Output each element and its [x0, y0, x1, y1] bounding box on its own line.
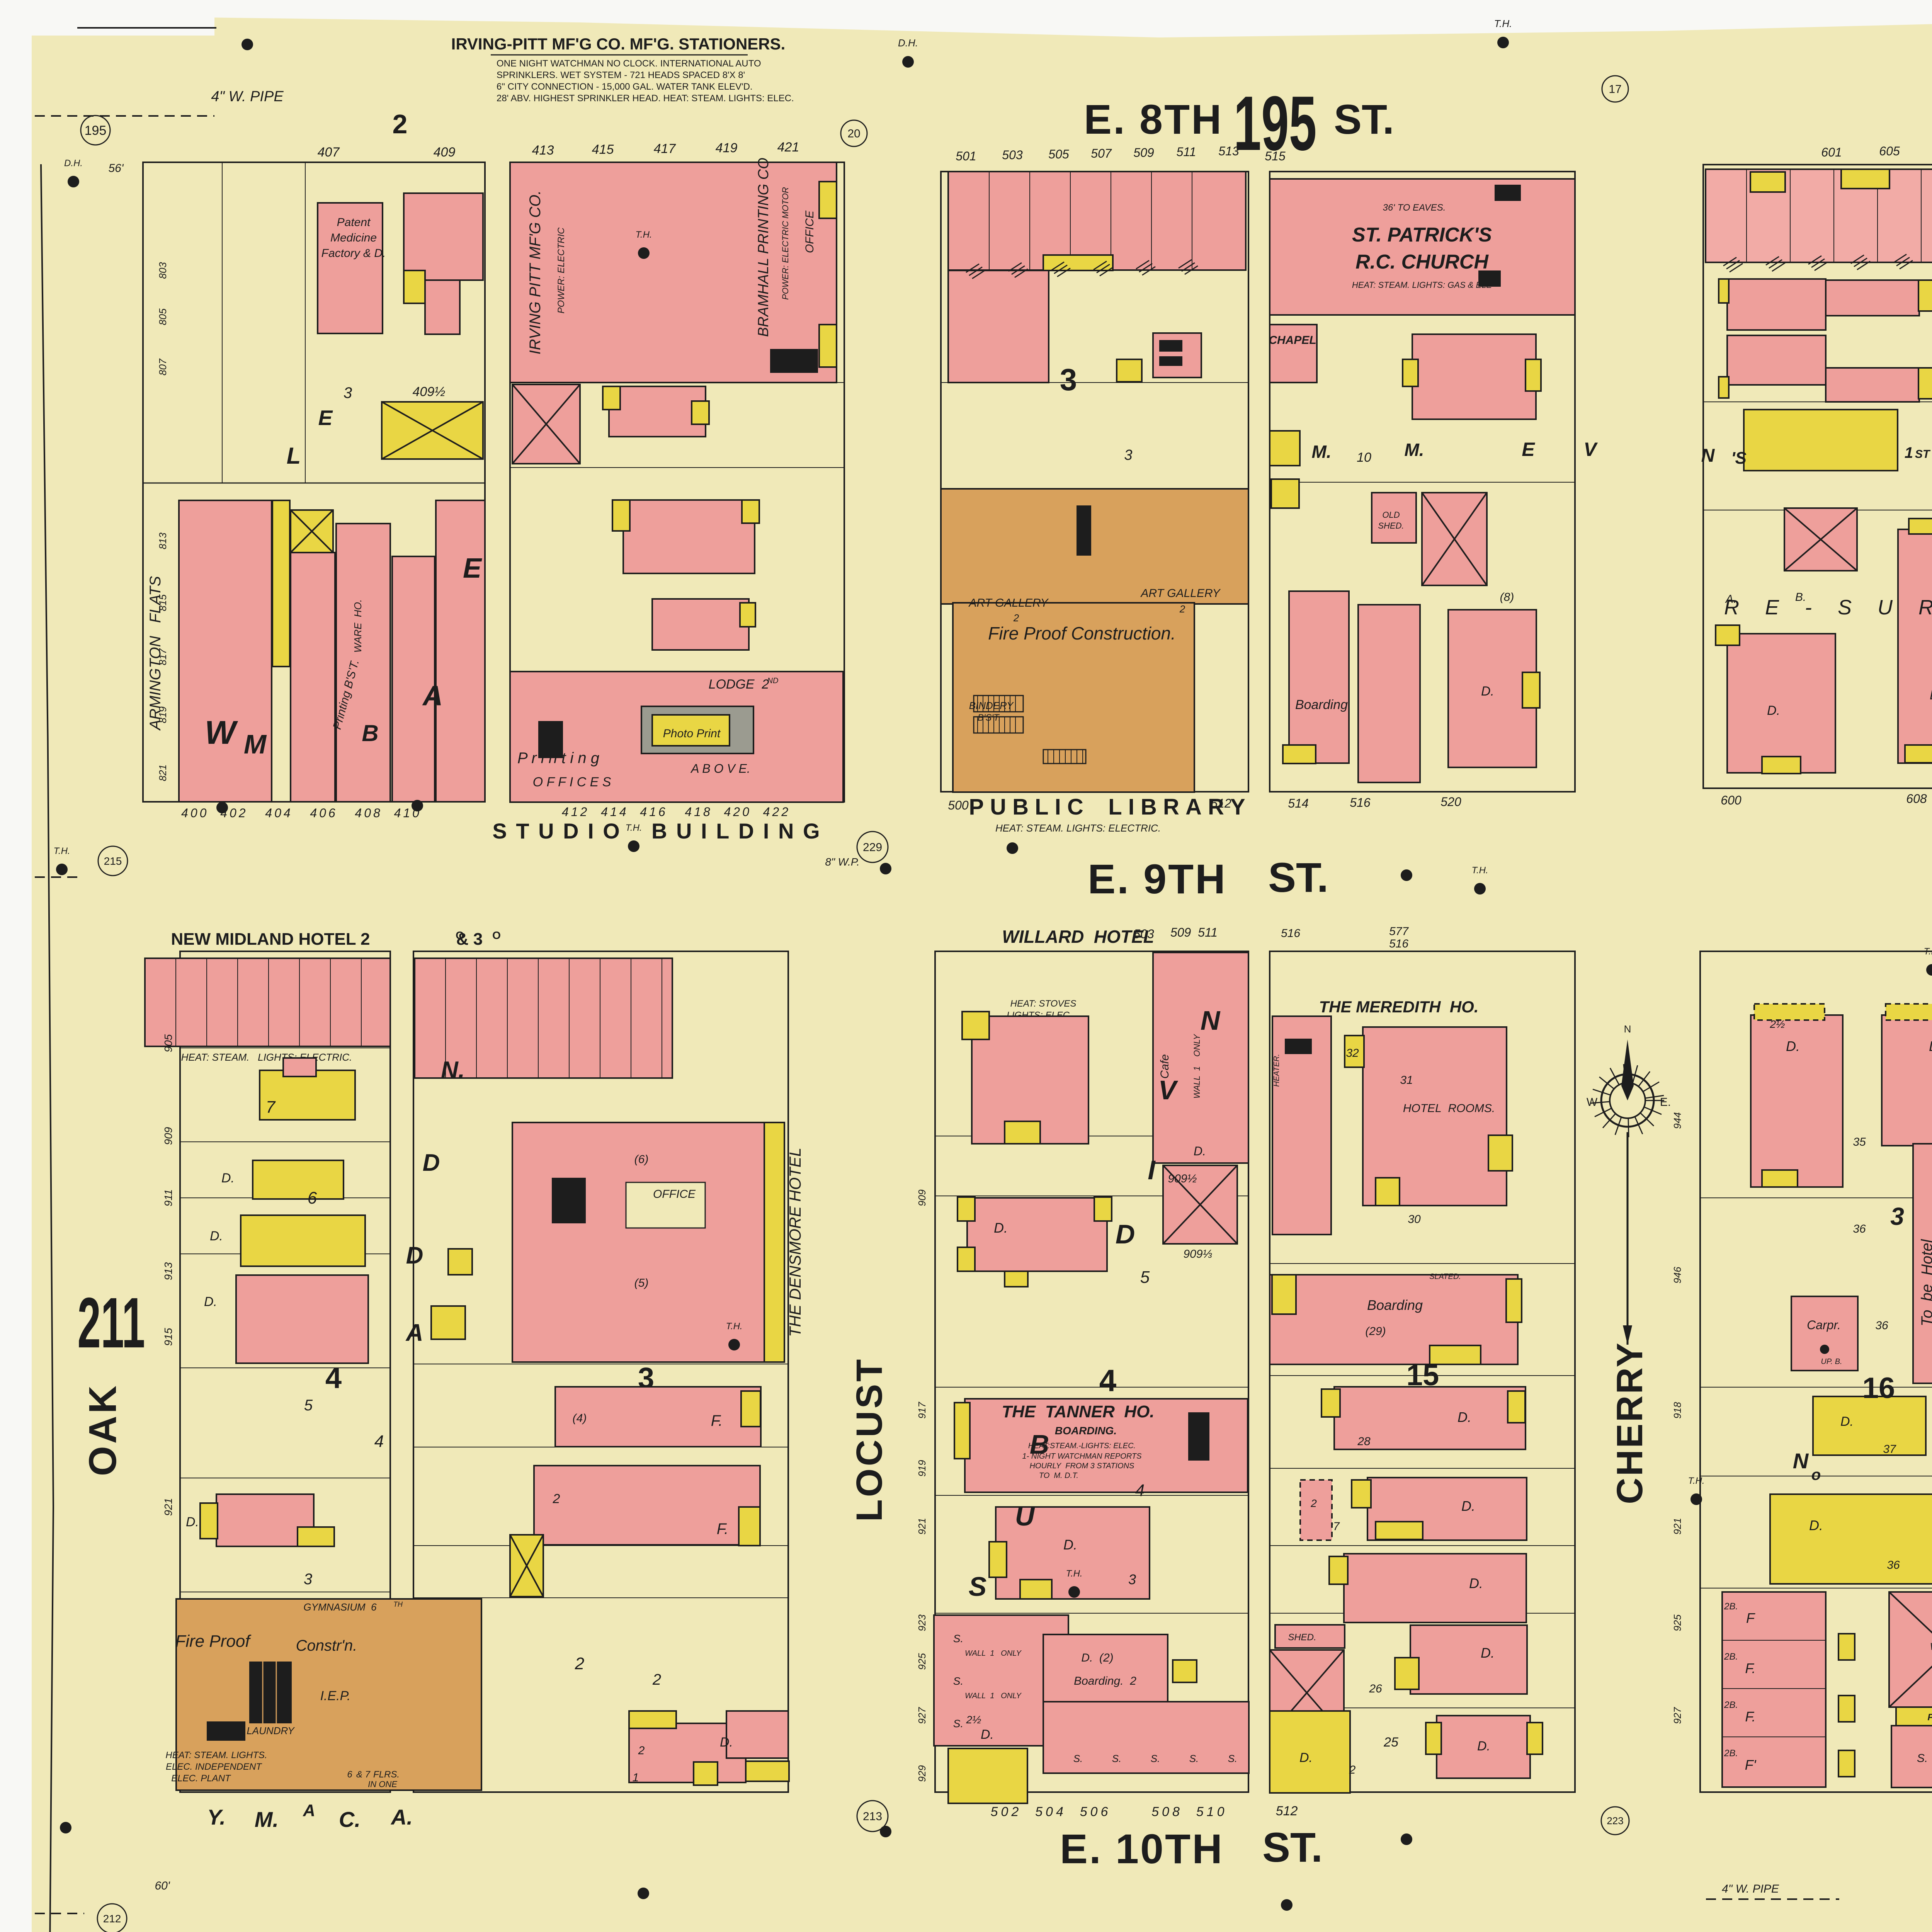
svg-text:SLATED.: SLATED.	[1429, 1272, 1461, 1281]
svg-text:8" W.P.: 8" W.P.	[825, 856, 859, 868]
svg-text:D.: D.	[1461, 1498, 1475, 1514]
svg-text:WARE HO.: WARE HO.	[352, 599, 364, 653]
svg-text:M.: M.	[1311, 442, 1331, 462]
svg-text:& 7: & 7	[356, 1769, 371, 1780]
svg-text:813: 813	[157, 532, 168, 549]
svg-text:S T U D I O B U I L D I N G: S T U D I O B U I L D I N G	[492, 819, 821, 843]
svg-text:W: W	[1587, 1096, 1598, 1109]
svg-text:3: 3	[304, 1571, 312, 1588]
svg-text:I.E.P.: I.E.P.	[320, 1689, 351, 1703]
svg-text:T.H.: T.H.	[1066, 1568, 1082, 1579]
svg-text:A: A	[422, 680, 443, 711]
svg-text:D. (2): D. (2)	[1081, 1651, 1113, 1664]
svg-text:CHAPEL: CHAPEL	[1269, 334, 1316, 347]
svg-text:HOTEL ROOMS.: HOTEL ROOMS.	[1403, 1102, 1495, 1115]
svg-text:To be Hotel: To be Hotel	[1918, 1239, 1932, 1326]
svg-text:600: 600	[1721, 793, 1742, 807]
svg-text:D: D	[406, 1242, 423, 1269]
svg-text:LOCUST: LOCUST	[849, 1357, 890, 1522]
svg-text:2: 2	[1179, 603, 1185, 615]
svg-text:A B O V E.: A B O V E.	[690, 762, 750, 776]
svg-text:S.: S.	[953, 1675, 963, 1687]
svg-text:PORCH 2: PORCH 2	[1927, 1712, 1932, 1723]
svg-text:E. 10TH: E. 10TH	[1060, 1825, 1224, 1872]
svg-text:505: 505	[1048, 147, 1069, 161]
svg-text:921: 921	[916, 1518, 928, 1534]
svg-text:W: W	[205, 714, 238, 751]
svg-text:601: 601	[1821, 145, 1842, 159]
svg-text:T.H.: T.H.	[1494, 18, 1512, 29]
svg-text:ELEC. PLANT: ELEC. PLANT	[171, 1773, 231, 1784]
svg-text:927: 927	[1672, 1707, 1683, 1724]
svg-text:2B.: 2B.	[1724, 1601, 1738, 1612]
svg-text:Constr'n.: Constr'n.	[296, 1637, 357, 1654]
svg-text:213: 213	[863, 1810, 882, 1823]
svg-text:502 504 506 508 510: 502 504 506 508 510	[991, 1804, 1228, 1819]
svg-text:511: 511	[1176, 145, 1196, 159]
svg-text:D.: D.	[1063, 1537, 1077, 1553]
svg-text:BRAMHALL PRINTING CO: BRAMHALL PRINTING CO	[755, 158, 772, 337]
svg-text:O: O	[492, 929, 501, 941]
svg-text:2: 2	[652, 1671, 661, 1688]
svg-text:1: 1	[1905, 444, 1913, 461]
svg-text:415: 415	[592, 142, 614, 157]
svg-text:2B.: 2B.	[1724, 1700, 1738, 1710]
svg-text:POWER: ELECTRIC MOTOR: POWER: ELECTRIC MOTOR	[781, 187, 790, 300]
svg-text:25: 25	[1383, 1735, 1398, 1750]
svg-text:56': 56'	[108, 162, 124, 175]
svg-text:C.: C.	[339, 1807, 361, 1832]
svg-text:IN ONE: IN ONE	[368, 1779, 397, 1789]
svg-text:3: 3	[1890, 1202, 1904, 1230]
svg-text:N: N	[1201, 1005, 1221, 1036]
svg-text:R E - S U R V E Y: R E - S U R V E Y	[1724, 596, 1932, 619]
svg-text:ART GALLERY: ART GALLERY	[968, 597, 1049, 609]
svg-text:IRVING-PITT MF'G CO. MF'G. STA: IRVING-PITT MF'G CO. MF'G. STATIONERS.	[451, 35, 786, 53]
svg-text:6: 6	[308, 1189, 317, 1207]
svg-text:10: 10	[1357, 450, 1371, 465]
svg-text:(6): (6)	[634, 1153, 649, 1166]
svg-text:31: 31	[1400, 1074, 1413, 1087]
svg-text:60': 60'	[155, 1879, 170, 1892]
svg-text:36: 36	[1853, 1223, 1866, 1235]
svg-text:605: 605	[1879, 144, 1900, 158]
svg-text:(5): (5)	[634, 1277, 649, 1289]
svg-text:909½: 909½	[1168, 1172, 1197, 1185]
svg-text:D: D	[1116, 1219, 1135, 1249]
svg-text:927: 927	[916, 1707, 928, 1724]
svg-text:A.: A.	[390, 1805, 413, 1829]
svg-text:HEAT: STEAM. LIGHTS: ELECTRIC.: HEAT: STEAM. LIGHTS: ELECTRIC.	[995, 822, 1161, 834]
svg-text:4: 4	[325, 1362, 342, 1395]
svg-text:577: 577	[1389, 925, 1409, 938]
svg-text:O F F I C E S: O F F I C E S	[533, 775, 611, 789]
svg-text:16: 16	[1862, 1372, 1895, 1405]
svg-text:6" CITY CONNECTION - 15,000 GA: 6" CITY CONNECTION - 15,000 GAL. WATER T…	[497, 82, 753, 92]
svg-text:5: 5	[304, 1397, 313, 1414]
svg-text:T.H.: T.H.	[1471, 865, 1488, 876]
svg-text:2: 2	[1310, 1497, 1317, 1509]
svg-text:N: N	[1793, 1449, 1809, 1473]
svg-text:A: A	[303, 1801, 315, 1820]
svg-text:2: 2	[575, 1654, 584, 1673]
svg-text:E: E	[318, 406, 333, 430]
svg-text:905: 905	[162, 1034, 174, 1052]
svg-text:D.: D.	[186, 1515, 199, 1529]
svg-text:923: 923	[916, 1614, 928, 1631]
svg-text:918: 918	[1672, 1402, 1683, 1419]
svg-text:Boarding: Boarding	[1295, 697, 1348, 712]
svg-text:N.: N.	[441, 1057, 465, 1083]
svg-text:36: 36	[1887, 1559, 1900, 1571]
svg-text:917: 917	[916, 1401, 928, 1419]
svg-text:3: 3	[1128, 1571, 1136, 1587]
svg-text:OAK: OAK	[81, 1383, 124, 1476]
svg-text:36' TO EAVES.: 36' TO EAVES.	[1383, 202, 1446, 213]
svg-text:ART GALLERY: ART GALLERY	[1140, 587, 1221, 600]
svg-text:TH: TH	[393, 1600, 403, 1608]
svg-text:30: 30	[1408, 1213, 1421, 1226]
svg-text:3: 3	[344, 384, 352, 401]
svg-text:M.: M.	[255, 1807, 279, 1832]
svg-text:E.: E.	[1660, 1096, 1671, 1109]
svg-text:212: 212	[103, 1913, 121, 1925]
svg-text:909: 909	[162, 1127, 174, 1145]
svg-text:D.H.: D.H.	[898, 37, 918, 49]
svg-text:815: 815	[157, 594, 168, 611]
svg-text:4: 4	[1135, 1481, 1145, 1500]
svg-text:1: 1	[633, 1771, 639, 1784]
svg-text:LODGE 2: LODGE 2	[709, 677, 769, 692]
svg-text:T.H.: T.H.	[1923, 946, 1932, 957]
svg-text:WALL 1 ONLY: WALL 1 ONLY	[965, 1692, 1022, 1700]
svg-text:D.: D.	[1469, 1575, 1483, 1591]
svg-text:TO M. D.T.: TO M. D.T.	[1039, 1471, 1078, 1480]
svg-text:V: V	[1158, 1075, 1179, 1105]
svg-text:SHED.: SHED.	[1378, 521, 1404, 531]
svg-text:28' ABV. HIGHEST SPRINKLER HEA: 28' ABV. HIGHEST SPRINKLER HEAD. HEAT: S…	[497, 93, 794, 104]
svg-text:ST.: ST.	[1268, 854, 1328, 901]
svg-text:512: 512	[1276, 1804, 1298, 1818]
svg-text:(4): (4)	[573, 1412, 587, 1425]
svg-text:D.: D.	[1809, 1517, 1823, 1533]
svg-text:507: 507	[1091, 146, 1112, 160]
svg-text:THE DENSMORE HOTEL: THE DENSMORE HOTEL	[786, 1148, 804, 1337]
svg-text:195: 195	[85, 123, 107, 138]
svg-text:35: 35	[1853, 1136, 1866, 1148]
svg-text:P r i n t i n g: P r i n t i n g	[517, 750, 599, 767]
svg-text:Fire Proof: Fire Proof	[175, 1632, 252, 1651]
svg-text:U: U	[1015, 1501, 1035, 1531]
svg-text:S.: S.	[1228, 1753, 1238, 1764]
svg-text:36: 36	[1875, 1319, 1888, 1332]
svg-text:509 511: 509 511	[1170, 925, 1218, 939]
svg-text:2: 2	[1013, 612, 1019, 624]
svg-text:D.: D.	[1299, 1750, 1313, 1765]
svg-text:D.: D.	[720, 1735, 733, 1750]
svg-text:BOARDING.: BOARDING.	[1055, 1425, 1117, 1437]
svg-text:M.: M.	[1404, 440, 1424, 460]
svg-text:HEAT: STEAM. LIGHTS: ELECTRI: HEAT: STEAM. LIGHTS: ELECTRIC.	[181, 1051, 352, 1063]
svg-text:M: M	[244, 729, 267, 759]
svg-text:407: 407	[318, 145, 340, 160]
svg-text:929: 929	[916, 1765, 928, 1782]
svg-text:26: 26	[1369, 1682, 1382, 1695]
svg-text:B: B	[362, 720, 378, 746]
svg-text:516: 516	[1389, 937, 1408, 950]
svg-text:F.: F.	[1745, 1660, 1755, 1676]
svg-text:412 414 416 418 420 422: 412 414 416 418 420 422	[562, 805, 791, 819]
svg-text:D: D	[423, 1150, 440, 1176]
svg-text:421: 421	[777, 140, 799, 155]
svg-text:WALL 1 ONLY: WALL 1 ONLY	[1192, 1034, 1202, 1099]
svg-text:D.: D.	[1481, 1645, 1495, 1661]
svg-text:E. 9TH: E. 9TH	[1088, 855, 1227, 902]
svg-text:ST.: ST.	[1262, 1824, 1323, 1871]
svg-text:D.: D.	[1194, 1144, 1206, 1158]
svg-text:211: 211	[78, 1283, 145, 1363]
svg-text:7: 7	[266, 1098, 276, 1117]
svg-text:5: 5	[1140, 1268, 1150, 1287]
svg-text:ELEC. INDEPENDENT: ELEC. INDEPENDENT	[166, 1762, 262, 1772]
svg-text:A: A	[405, 1320, 423, 1346]
svg-text:D.: D.	[981, 1727, 994, 1742]
svg-text:N: N	[1624, 1023, 1631, 1035]
svg-text:32: 32	[1346, 1047, 1359, 1060]
svg-text:817: 817	[157, 648, 168, 665]
svg-text:509: 509	[1133, 146, 1154, 160]
svg-text:516: 516	[1350, 796, 1371, 810]
svg-text:FLRS.: FLRS.	[373, 1769, 400, 1780]
svg-text:20: 20	[847, 128, 860, 140]
svg-text:915: 915	[162, 1328, 174, 1346]
svg-text:413: 413	[532, 143, 554, 158]
svg-text:OFFICE: OFFICE	[803, 210, 816, 253]
svg-text:HEAT: STEAM. LIGHTS: GAS & ELE: HEAT: STEAM. LIGHTS: GAS & ELE	[1352, 280, 1492, 290]
svg-text:Boarding: Boarding	[1930, 688, 1932, 702]
svg-text:Photo Print: Photo Print	[663, 727, 721, 740]
svg-text:921: 921	[1672, 1518, 1683, 1534]
svg-text:LAUNDRY: LAUNDRY	[247, 1725, 295, 1736]
svg-text:P U B L I C L I B R A R Y: P U B L I C L I B R A R Y	[969, 794, 1245, 820]
svg-text:Factory & D.: Factory & D.	[321, 247, 386, 260]
svg-text:2B.: 2B.	[1724, 1748, 1738, 1759]
svg-text:L: L	[287, 443, 301, 469]
svg-text:512: 512	[1211, 796, 1231, 810]
svg-text:946: 946	[1672, 1267, 1683, 1284]
svg-text:D.: D.	[994, 1220, 1008, 1236]
svg-text:3: 3	[1060, 362, 1077, 397]
svg-text:819: 819	[157, 706, 168, 723]
svg-text:2: 2	[638, 1744, 645, 1757]
svg-text:2: 2	[393, 109, 408, 139]
svg-text:D.: D.	[1458, 1409, 1471, 1425]
svg-text:SPRINKLERS. WET SYSTEM - 721 H: SPRINKLERS. WET SYSTEM - 721 HEADS SPACE…	[497, 70, 745, 80]
svg-text:20: 20	[1896, 1930, 1907, 1932]
svg-text:F: F	[1746, 1610, 1755, 1626]
svg-text:4: 4	[1099, 1363, 1117, 1398]
svg-text:S.: S.	[1917, 1752, 1928, 1765]
svg-text:(8): (8)	[1500, 591, 1514, 604]
svg-text:803: 803	[157, 262, 168, 279]
svg-text:T.H.: T.H.	[625, 823, 642, 833]
svg-text:608: 608	[1906, 792, 1927, 806]
svg-text:S.: S.	[953, 1633, 963, 1645]
svg-text:513: 513	[1218, 144, 1239, 158]
svg-text:807: 807	[157, 358, 168, 376]
svg-text:D.: D.	[1840, 1414, 1854, 1429]
svg-text:4: 4	[374, 1432, 384, 1451]
svg-text:OFFICE: OFFICE	[653, 1188, 696, 1201]
svg-text:Boarding: Boarding	[1367, 1297, 1423, 1313]
svg-text:409½: 409½	[412, 384, 445, 399]
svg-text:THE MEREDITH HO.: THE MEREDITH HO.	[1319, 998, 1478, 1016]
svg-text:229: 229	[863, 841, 882, 854]
svg-text:28: 28	[1357, 1435, 1371, 1448]
svg-text:ND: ND	[767, 677, 779, 685]
svg-text:215: 215	[104, 855, 122, 867]
svg-text:T.H.: T.H.	[1688, 1476, 1704, 1486]
svg-text:516: 516	[1281, 927, 1300, 940]
svg-text:WAGON: WAGON	[1930, 1641, 1932, 1652]
svg-text:2B.: 2B.	[1724, 1651, 1738, 1662]
svg-text:D.: D.	[221, 1171, 235, 1185]
svg-text:223: 223	[1607, 1815, 1623, 1827]
svg-text:409: 409	[434, 145, 456, 160]
svg-text:909: 909	[916, 1189, 928, 1206]
svg-text:F.: F.	[711, 1412, 723, 1429]
svg-text:B: B	[1030, 1429, 1049, 1459]
svg-text:o: o	[1811, 1466, 1821, 1483]
svg-text:NEW MIDLAND HOTEL 2: NEW MIDLAND HOTEL 2	[171, 930, 370, 949]
svg-text:515: 515	[1265, 149, 1286, 163]
svg-text:HEAT: STEAM. LIGHTS.: HEAT: STEAM. LIGHTS.	[165, 1750, 267, 1760]
svg-text:UP. B.: UP. B.	[1821, 1357, 1842, 1366]
svg-text:Y.: Y.	[207, 1805, 226, 1829]
svg-text:(29): (29)	[1365, 1325, 1386, 1338]
svg-text:Medicine: Medicine	[330, 231, 377, 244]
svg-text:S.: S.	[1073, 1753, 1083, 1764]
svg-text:HOURLY FROM 3 STATIONS: HOURLY FROM 3 STATIONS	[1030, 1462, 1134, 1470]
svg-text:S.: S.	[953, 1718, 963, 1730]
svg-text:514: 514	[1288, 796, 1308, 810]
svg-text:503: 503	[1002, 148, 1023, 162]
svg-text:944: 944	[1672, 1112, 1683, 1129]
svg-text:17: 17	[1609, 83, 1621, 96]
svg-text:925: 925	[1672, 1614, 1683, 1631]
svg-text:37: 37	[1883, 1443, 1896, 1456]
svg-text:2½: 2½	[966, 1714, 981, 1726]
svg-text:911: 911	[162, 1189, 174, 1207]
svg-text:417: 417	[654, 141, 676, 156]
svg-text:D.: D.	[1767, 703, 1780, 718]
svg-text:419: 419	[716, 141, 738, 155]
svg-text:D.: D.	[210, 1229, 223, 1243]
svg-text:GYMNASIUM 6: GYMNASIUM 6	[303, 1601, 377, 1613]
svg-text:D.: D.	[1786, 1038, 1800, 1054]
svg-text:ST. PATRICK'S: ST. PATRICK'S	[1352, 224, 1492, 246]
svg-text:6: 6	[347, 1769, 352, 1780]
svg-text:HEAT: STOVES: HEAT: STOVES	[1010, 998, 1077, 1009]
svg-text:POWER: ELECTRIC: POWER: ELECTRIC	[556, 227, 566, 313]
svg-text:ONE NIGHT WATCHMAN NO CLOCK. I: ONE NIGHT WATCHMAN NO CLOCK. INTERNATION…	[497, 58, 761, 69]
svg-text:I: I	[1148, 1155, 1156, 1185]
svg-text:2: 2	[553, 1492, 560, 1506]
svg-text:D.: D.	[1929, 1038, 1932, 1054]
svg-text:R.C. CHURCH: R.C. CHURCH	[1355, 251, 1489, 273]
svg-text:S.: S.	[1151, 1753, 1160, 1764]
svg-text:E: E	[1522, 439, 1535, 460]
svg-text:& 3: & 3	[456, 930, 483, 949]
svg-text:SHED.: SHED.	[1288, 1632, 1316, 1643]
svg-text:T.H.: T.H.	[635, 230, 652, 240]
svg-text:Carpr.: Carpr.	[1807, 1318, 1841, 1332]
svg-text:ST.: ST.	[1334, 96, 1394, 143]
svg-text:HEATER.: HEATER.	[1272, 1054, 1281, 1087]
svg-text:500: 500	[948, 798, 969, 812]
svg-text:'S: 'S	[1731, 449, 1747, 468]
svg-text:805: 805	[157, 308, 168, 325]
svg-text:S.: S.	[1112, 1753, 1122, 1764]
svg-text:3: 3	[1124, 447, 1132, 463]
svg-text:ST: ST	[1915, 448, 1931, 461]
svg-text:2½: 2½	[1770, 1018, 1785, 1030]
svg-text:BINDERY: BINDERY	[969, 700, 1014, 711]
svg-text:V: V	[1583, 439, 1598, 460]
svg-text:T.H.: T.H.	[53, 846, 70, 856]
svg-text:CHERRY: CHERRY	[1609, 1341, 1650, 1504]
svg-text:913: 913	[162, 1262, 174, 1280]
svg-text:F': F'	[1745, 1757, 1757, 1773]
svg-text:D.: D.	[1477, 1739, 1490, 1753]
svg-text:Patent: Patent	[337, 216, 371, 229]
svg-text:501: 501	[956, 149, 976, 163]
svg-text:921: 921	[162, 1498, 174, 1516]
svg-text:IRVING PITT MF'G CO.: IRVING PITT MF'G CO.	[527, 190, 544, 355]
svg-text:2: 2	[1349, 1764, 1356, 1776]
svg-text:4" W. PIPE: 4" W. PIPE	[211, 88, 284, 105]
svg-text:F.: F.	[1745, 1709, 1755, 1725]
svg-text:503: 503	[1133, 927, 1154, 941]
svg-text:S.: S.	[1189, 1753, 1199, 1764]
svg-text:D.: D.	[1481, 684, 1494, 699]
svg-text:THE TANNER HO.: THE TANNER HO.	[1002, 1402, 1154, 1421]
svg-text:4" W. PIPE: 4" W. PIPE	[1722, 1883, 1779, 1895]
svg-text:520: 520	[1440, 795, 1461, 809]
svg-text:F.: F.	[717, 1520, 728, 1537]
svg-text:B'S'T.: B'S'T.	[978, 713, 1001, 723]
svg-text:D.: D.	[204, 1294, 217, 1309]
svg-text:Boarding. 2: Boarding. 2	[1074, 1675, 1136, 1687]
svg-text:821: 821	[157, 764, 168, 781]
svg-text:S: S	[969, 1571, 987, 1602]
svg-text:D.H.: D.H.	[64, 158, 83, 168]
svg-text:E. 8TH: E. 8TH	[1084, 96, 1223, 143]
svg-text:Fire Proof Construction.: Fire Proof Construction.	[988, 623, 1176, 643]
svg-text:925: 925	[916, 1653, 928, 1670]
svg-text:OLD: OLD	[1382, 510, 1400, 520]
svg-text:909⅓: 909⅓	[1183, 1248, 1212, 1260]
svg-text:E: E	[463, 553, 482, 584]
svg-text:N: N	[1701, 446, 1715, 466]
svg-text:WILLARD HOTEL: WILLARD HOTEL	[1002, 927, 1154, 947]
svg-text:WALL 1 ONLY: WALL 1 ONLY	[965, 1649, 1022, 1658]
svg-text:919: 919	[916, 1460, 928, 1476]
svg-text:T.H.: T.H.	[726, 1321, 742, 1332]
